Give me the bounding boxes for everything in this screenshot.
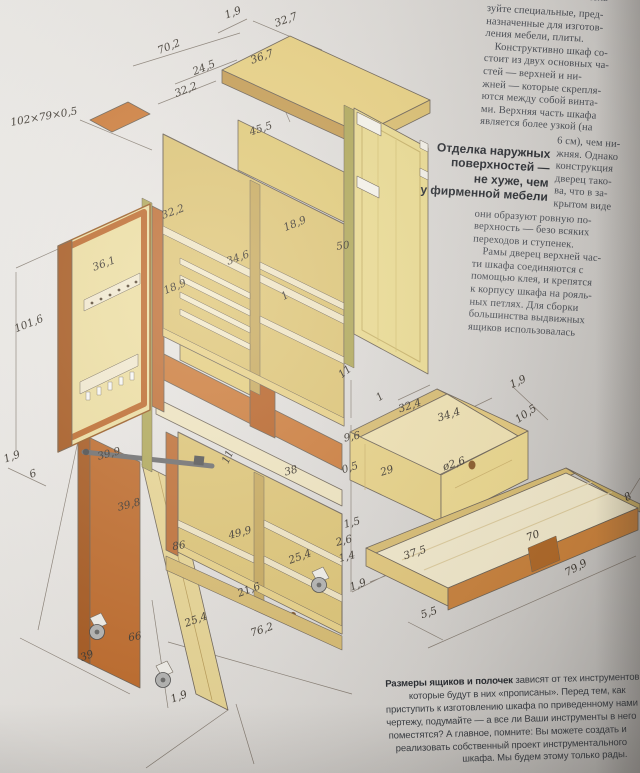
pullquote-row: Отделка наружных поверхностей — не хуже,… (475, 131, 621, 215)
caster-wheel (156, 661, 174, 688)
right-hinge-strip (344, 105, 354, 368)
right-door (354, 108, 428, 374)
footer-lead: Размеры ящиков и полочек (385, 675, 513, 690)
paragraph: Конструктивно шкаф со- стоит из двух осн… (480, 41, 627, 137)
left-tool-door (58, 204, 150, 452)
paragraph: Рамы дверец верхней час- ти шкафа соедин… (468, 246, 615, 342)
footer-line-text: зависят от тех инструментов, (513, 672, 640, 687)
footer-note: Размеры ящиков и полочек зависят от тех … (385, 672, 627, 769)
pullquote: Отделка наружных поверхностей — не хуже,… (419, 139, 551, 210)
scanned-magazine-page: 1,932,770,236,724,532,245,5102×79×0,532,… (0, 0, 640, 773)
paragraph-narrow: 6 см), чем ни- жняя. Однако конструкция … (547, 135, 621, 215)
article-column: исполь- зуйте специальные, пред- назначе… (468, 0, 630, 342)
